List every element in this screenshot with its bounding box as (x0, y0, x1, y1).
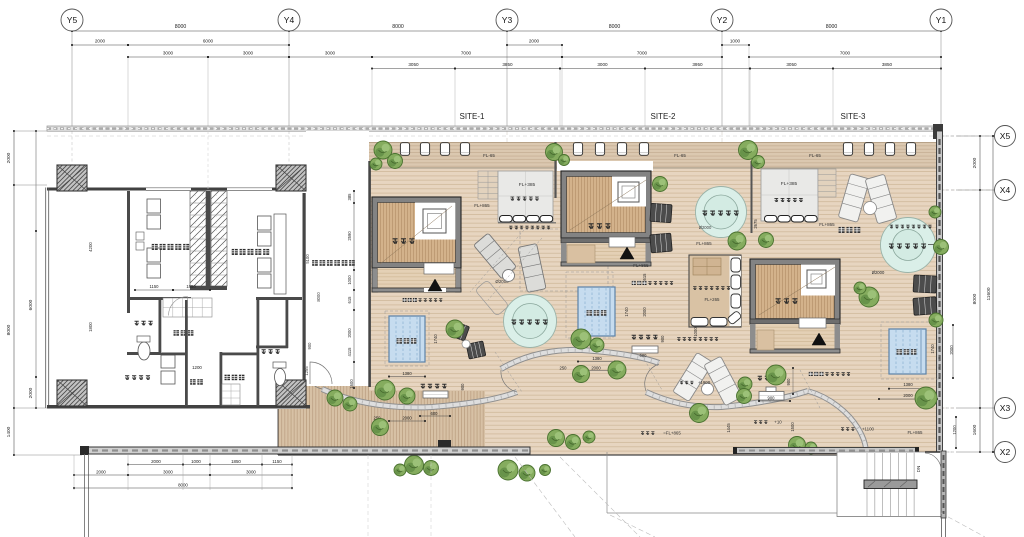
svg-text:2000: 2000 (949, 345, 954, 355)
svg-text:1740: 1740 (930, 344, 935, 354)
svg-text:SITE-1: SITE-1 (460, 112, 485, 121)
svg-text:=FL+865: =FL+865 (663, 431, 681, 436)
svg-text:Y3: Y3 (502, 15, 513, 25)
svg-text:615: 615 (642, 273, 647, 281)
svg-text:1150: 1150 (272, 459, 282, 464)
svg-text:2000: 2000 (642, 307, 647, 317)
svg-text:3000: 3000 (163, 51, 174, 56)
svg-text:2000: 2000 (529, 39, 540, 44)
svg-text:1255: 1255 (304, 366, 309, 376)
svg-text:3000: 3000 (325, 51, 336, 56)
svg-text:Y1: Y1 (936, 15, 947, 25)
svg-text:2675: 2675 (753, 219, 758, 229)
svg-text:8000: 8000 (6, 324, 12, 335)
svg-text:2000: 2000 (96, 470, 106, 475)
svg-text:X4: X4 (1000, 185, 1011, 195)
svg-text:1740: 1740 (624, 307, 629, 317)
svg-text:1600: 1600 (349, 379, 354, 389)
svg-text:3050: 3050 (408, 62, 419, 67)
svg-text:1000: 1000 (347, 275, 352, 285)
svg-text:2000: 2000 (151, 459, 161, 464)
svg-text:2000: 2000 (972, 157, 978, 168)
svg-text:2000: 2000 (95, 39, 106, 44)
svg-text:X3: X3 (1000, 403, 1011, 413)
svg-text:2000: 2000 (28, 387, 34, 398)
svg-text:8000: 8000 (392, 24, 404, 30)
svg-text:DN: DN (916, 466, 921, 473)
svg-text:6000: 6000 (203, 39, 214, 44)
svg-text:+1100: +1100 (862, 427, 875, 432)
svg-text:600: 600 (640, 353, 648, 358)
svg-text:X5: X5 (1000, 131, 1011, 141)
svg-text:900: 900 (786, 378, 791, 386)
svg-text:FL-65: FL-65 (809, 153, 821, 158)
svg-text:1500: 1500 (790, 422, 795, 432)
svg-text:X2: X2 (1000, 447, 1011, 457)
svg-text:FL+385: FL+385 (781, 181, 798, 187)
svg-text:385: 385 (347, 193, 352, 201)
svg-text:1445: 1445 (726, 423, 731, 433)
svg-text:3950: 3950 (692, 62, 703, 67)
svg-text:FL+865: FL+865 (696, 241, 712, 246)
svg-text:FL+265: FL+265 (704, 297, 720, 302)
svg-text:4115: 4115 (347, 347, 352, 357)
svg-text:3850: 3850 (502, 62, 513, 67)
svg-text:2000: 2000 (347, 328, 352, 338)
svg-text:3000: 3000 (597, 62, 608, 67)
svg-text:8000: 8000 (175, 24, 187, 30)
svg-text:+1900: +1900 (698, 380, 711, 385)
svg-text:1600: 1600 (972, 424, 978, 435)
svg-text:1000: 1000 (191, 459, 201, 464)
svg-text:2000: 2000 (402, 416, 412, 421)
svg-text:FL+865: FL+865 (633, 263, 649, 268)
svg-text:1000: 1000 (693, 327, 698, 337)
svg-text:1740: 1740 (433, 334, 438, 344)
svg-text:FL+865: FL+865 (907, 430, 923, 435)
svg-text:900: 900 (307, 342, 312, 350)
svg-text:3000: 3000 (243, 51, 254, 56)
svg-text:FL+865: FL+865 (474, 203, 490, 208)
svg-text:FL+385: FL+385 (519, 182, 536, 188)
svg-text:900: 900 (660, 335, 665, 343)
svg-text:1150: 1150 (149, 284, 159, 289)
svg-text:2000: 2000 (591, 366, 601, 371)
svg-text:FL-65: FL-65 (674, 153, 686, 158)
svg-text:SITE-2: SITE-2 (651, 112, 676, 121)
svg-text:1400: 1400 (6, 426, 12, 437)
svg-text:+10: +10 (774, 420, 782, 425)
svg-text:8000: 8000 (609, 24, 621, 30)
svg-text:3000: 3000 (163, 470, 173, 475)
svg-text:Y4: Y4 (284, 15, 295, 25)
svg-text:1850: 1850 (231, 459, 241, 464)
svg-text:600: 600 (431, 411, 439, 416)
svg-text:2590: 2590 (347, 231, 352, 241)
svg-text:Y2: Y2 (717, 15, 728, 25)
svg-text:Ø2000: Ø2000 (699, 225, 712, 230)
svg-text:2000: 2000 (903, 393, 913, 398)
svg-text:Y5: Y5 (67, 15, 78, 25)
svg-text:FL-65: FL-65 (483, 153, 495, 158)
svg-text:FL+865: FL+865 (819, 222, 835, 227)
svg-text:1850: 1850 (186, 284, 196, 289)
svg-text:7000: 7000 (840, 51, 851, 56)
svg-text:900: 900 (768, 396, 776, 401)
svg-text:7000: 7000 (637, 51, 648, 56)
svg-text:3000: 3000 (246, 470, 256, 475)
svg-text:Ø2000: Ø2000 (872, 270, 885, 275)
svg-text:8000: 8000 (972, 293, 978, 304)
svg-text:250: 250 (560, 366, 568, 371)
svg-text:3850: 3850 (882, 62, 893, 67)
svg-text:1000: 1000 (730, 39, 741, 44)
svg-text:11600: 11600 (986, 287, 992, 300)
svg-text:1380: 1380 (592, 356, 602, 361)
svg-text:4200: 4200 (88, 242, 93, 252)
svg-text:7000: 7000 (461, 51, 472, 56)
svg-text:SITE-3: SITE-3 (841, 112, 866, 121)
svg-text:8000: 8000 (316, 292, 321, 302)
svg-text:1800: 1800 (88, 322, 93, 332)
svg-text:6000: 6000 (28, 299, 34, 310)
svg-text:8000: 8000 (178, 483, 188, 488)
svg-text:5100: 5100 (305, 254, 310, 264)
svg-text:2000: 2000 (6, 152, 12, 163)
svg-text:615: 615 (347, 296, 352, 304)
svg-text:1380: 1380 (903, 382, 913, 387)
svg-text:900: 900 (460, 383, 465, 391)
svg-text:1200: 1200 (192, 365, 202, 370)
svg-text:3050: 3050 (786, 62, 797, 67)
svg-text:8000: 8000 (826, 24, 838, 30)
svg-text:1380: 1380 (402, 371, 412, 376)
